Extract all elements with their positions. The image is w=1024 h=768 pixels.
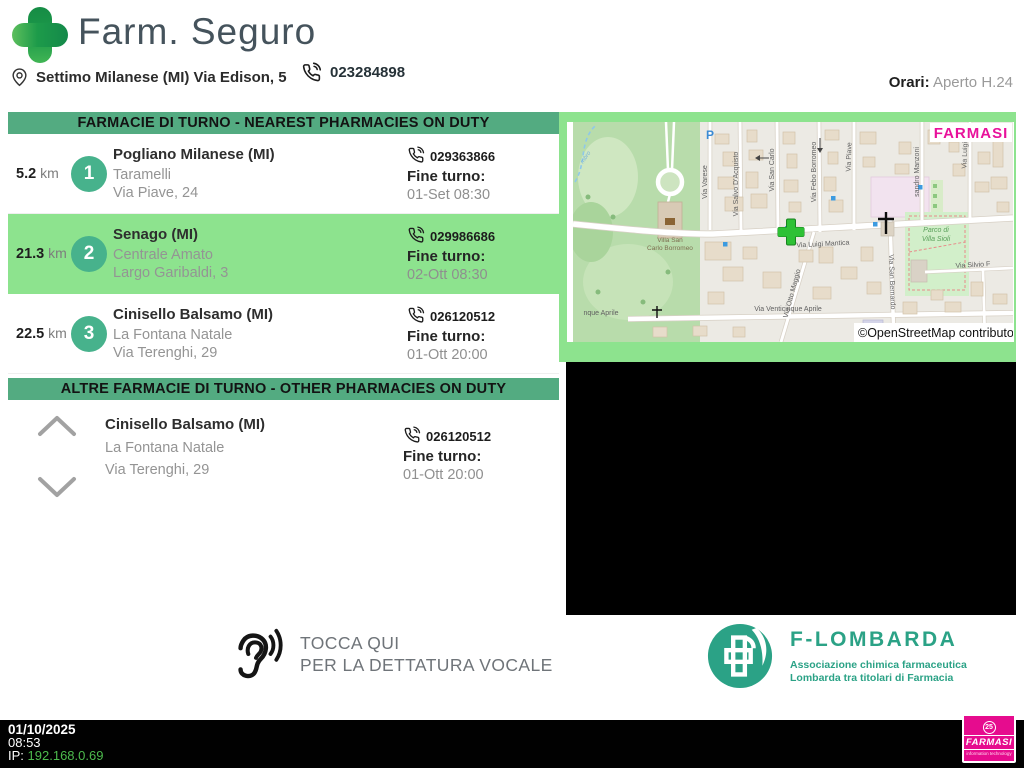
street-label: Via Varese [702,165,709,199]
pharmacy-row-1[interactable]: 5.2 km 1 Pogliano Milanese (MI) Taramell… [8,134,559,214]
pharmacy-name: La Fontana Natale [113,326,407,344]
other-pharmacy-row[interactable]: Cinisello Balsamo (MI) La Fontana Natale… [8,404,559,509]
pharmacy-city: Pogliano Milanese (MI) [113,146,407,163]
fine-turno-value: 01-Ott 20:00 [403,467,559,483]
street-label: Via Venticinque Aprile [754,306,822,313]
pharmacy-street: Via Terenghi, 29 [105,459,403,481]
f-lombarda-logo [706,622,774,690]
pharmacy-city: Cinisello Balsamo (MI) [113,306,407,323]
distance: 21.3 km [16,245,71,262]
pharmacy-cross-logo [10,5,70,65]
fine-turno-label: Fine turno: [407,328,559,345]
pharmacy-name: Centrale Amato [113,246,407,264]
pharmacy-city: Cinisello Balsamo (MI) [105,416,403,433]
pharmacies-panel: FARMACIE DI TURNO - NEAREST PHARMACIES O… [8,112,559,612]
anniversary-badge: 25 [983,721,996,734]
other-pharmacies-header: ALTRE FARMACIE DI TURNO - OTHER PHARMACI… [8,378,559,400]
footer-bar: 01/10/2025 08:53 IP: 192.168.0.69 25 FAR… [0,720,1024,768]
street-label: sandro Manzoni [914,147,921,197]
fine-turno-label: Fine turno: [407,248,559,265]
phone-icon [407,226,425,244]
address-text: Settimo Milanese (MI) Via Edison, 5 [36,69,287,86]
voice-line2: PER LA DETTATURA VOCALE [300,654,553,676]
openstreetmap-map[interactable]: Via Varese Via Salvo D'Acquisto Via San … [573,122,1013,342]
opening-hours: Orari: Aperto H.24 [889,74,1013,91]
voice-line1: TOCCA QUI [300,632,553,654]
farmasi-footer-logo: 25 FARMASI information technology [962,714,1016,763]
chevron-down-icon [36,475,78,499]
fine-turno-label: Fine turno: [407,168,559,185]
phone-number: 023284898 [330,64,405,81]
villa-label: Carlo Borromeo [647,245,693,252]
pharmacy-phone-number: 029986686 [430,229,495,244]
farmasi-logo-subtext: information technology [966,751,1011,756]
f-lombarda-logo-block: F-LOMBARDA Associazione chimica farmaceu… [706,622,967,690]
pharmacy-name: Taramelli [113,166,407,184]
hours-value: Aperto H.24 [933,74,1013,91]
farmasi-logo-text: FARMASI [964,735,1014,750]
pharmacy-street: Via Terenghi, 29 [113,344,407,362]
phone-icon [407,146,425,164]
pharmacy-street: Via Piave, 24 [113,184,407,202]
footer-ip: IP: 192.168.0.69 [8,750,103,763]
rank-badge: 3 [71,316,107,352]
street-label: Via Febo Borromeo [811,142,818,203]
chevron-up-icon [36,414,78,438]
phone-icon [407,306,425,324]
phone-icon [301,62,322,83]
pharmacy-city: Senago (MI) [113,226,407,243]
f-lombarda-name: F-LOMBARDA [790,628,967,652]
villa-label: Villa San [657,237,683,244]
street-label: Via San Carlo [769,148,776,191]
farmasi-watermark: FARMASI [934,125,1009,142]
phone-icon [403,426,421,444]
pharmacy-address: Settimo Milanese (MI) Via Edison, 5 [10,66,287,88]
voice-dictation-button[interactable]: TOCCA QUI PER LA DETTATURA VOCALE [228,624,553,684]
distance: 5.2 km [16,165,71,182]
f-lombarda-subtitle1: Associazione chimica farmaceutica [790,659,967,672]
pharmacy-phone: 023284898 [301,62,405,83]
pharmacy-phone-number: 026120512 [430,309,495,324]
ear-icon [228,624,286,684]
scroll-down-button[interactable] [34,473,80,504]
pharmacy-name: La Fontana Natale [105,437,403,459]
nearest-pharmacies-header: FARMACIE DI TURNO - NEAREST PHARMACIES O… [8,112,559,134]
rank-badge: 1 [71,156,107,192]
f-lombarda-subtitle2: Lombarda tra titolari di Farmacia [790,672,967,685]
scroll-up-button[interactable] [34,412,80,443]
rank-badge: 2 [71,236,107,272]
distance: 22.5 km [16,325,71,342]
parking-icon: P [706,128,714,142]
park-label: Villa Sioli [922,236,951,243]
map-attribution: ©OpenStreetMap contributors [858,326,1013,340]
map-panel: Via Varese Via Salvo D'Acquisto Via San … [559,112,1016,362]
fine-turno-label: Fine turno: [403,448,559,465]
street-label: nque Aprile [583,310,618,317]
location-pin-icon [10,66,29,88]
pharmacy-row-3[interactable]: 22.5 km 3 Cinisello Balsamo (MI) La Font… [8,294,559,374]
pharmacy-row-2-selected[interactable]: 21.3 km 2 Senago (MI) Centrale Amato Lar… [8,214,559,294]
page-title: Farm. Seguro [78,11,316,53]
pharmacy-phone-number: 029363866 [430,149,495,164]
pharmacy-phone-number: 026120512 [426,429,491,444]
fine-turno-value: 01-Set 08:30 [407,187,559,203]
pharmacy-street: Largo Garibaldi, 3 [113,264,407,282]
fine-turno-value: 02-Ott 08:30 [407,267,559,283]
hours-label: Orari: [889,74,930,91]
blank-media-area [566,362,1016,615]
fine-turno-value: 01-Ott 20:00 [407,347,559,363]
street-label: Via Piave [845,142,853,172]
kiosk-screen: Farm. Seguro Settimo Milanese (MI) Via E… [0,0,1024,768]
street-label: Via Salvo D'Acquisto [733,152,740,217]
ip-address: 192.168.0.69 [28,748,104,763]
park-label: Parco di [923,227,949,234]
